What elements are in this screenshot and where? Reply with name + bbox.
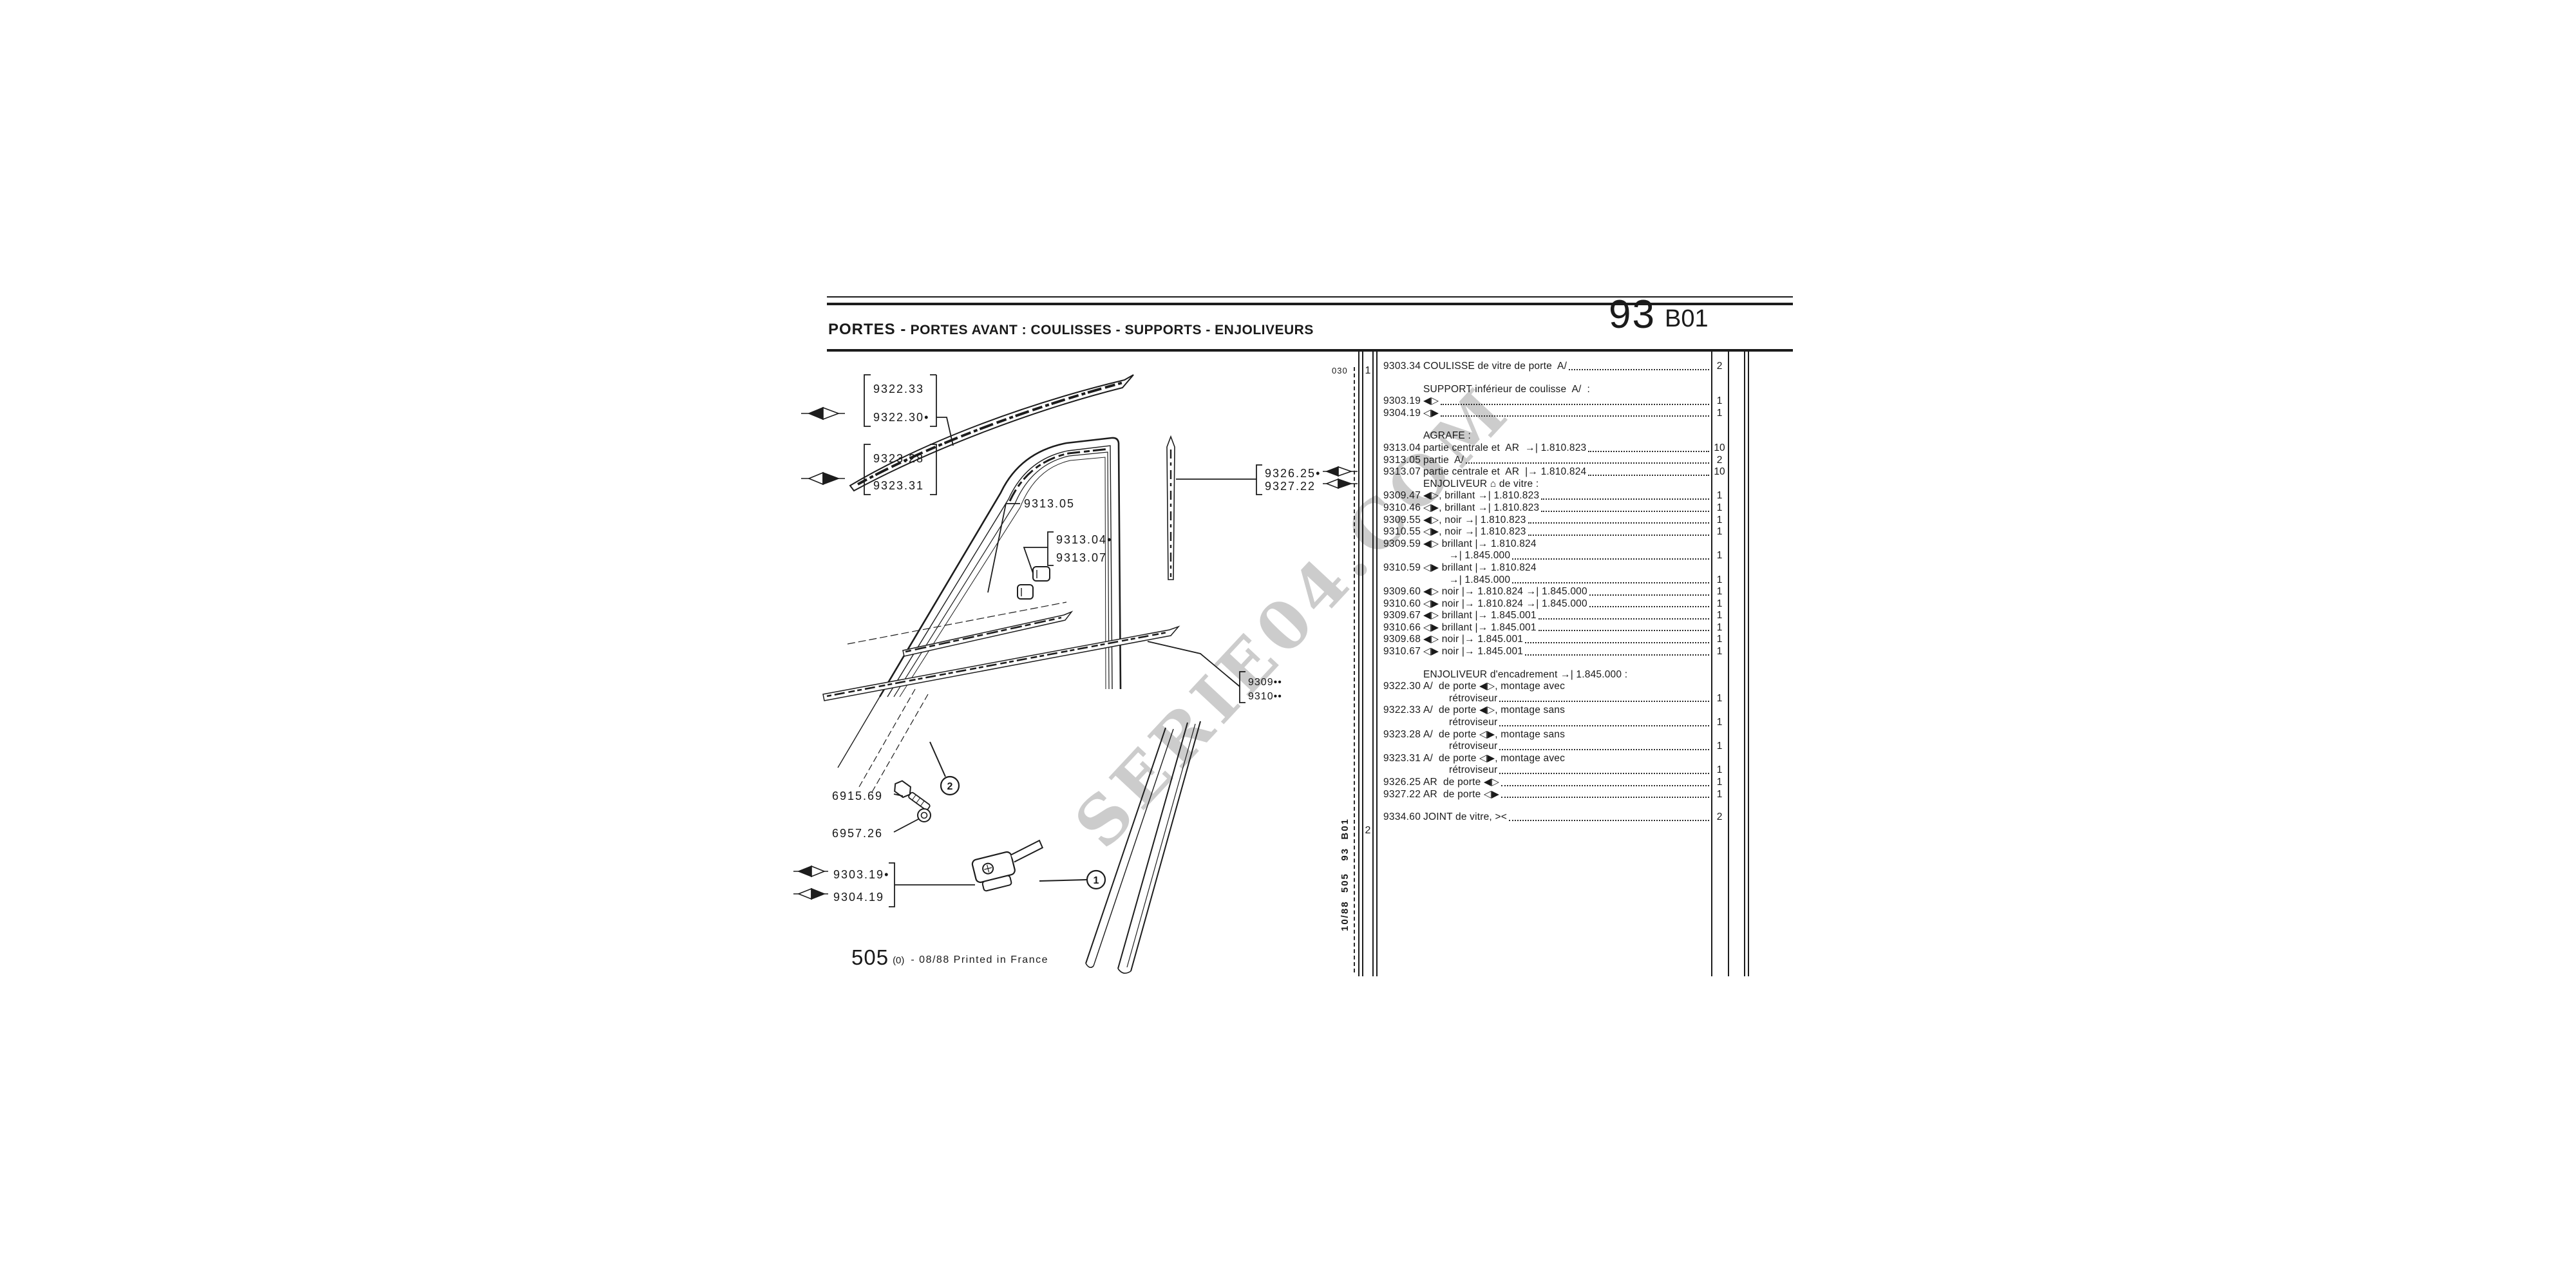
quarter-trim-strip	[1167, 437, 1175, 580]
table-row: 9304.19◁▶1	[1383, 408, 1728, 420]
part-ref: 9310.55	[1383, 526, 1423, 538]
part-description: ◀▷ brillant |→ 1.845.001	[1423, 610, 1537, 622]
page-number-block: 93 B01	[1609, 295, 1709, 335]
dotted-leader	[1528, 522, 1709, 524]
table-row: 9309.59◀▷ brillant |→ 1.810.824	[1383, 538, 1728, 551]
table-row: AGRAFE :	[1383, 430, 1728, 442]
dotted-leader	[1466, 462, 1709, 464]
door-window-frame	[880, 438, 1121, 697]
part-description: AGRAFE :	[1423, 430, 1471, 442]
part-ref: 9309.67	[1383, 610, 1423, 622]
part-description: ◁▶	[1423, 408, 1439, 420]
dotted-leader	[1539, 630, 1709, 631]
parts-table-rows: 9303.34COULISSE de vitre de porte A/2SUP…	[1383, 361, 1728, 824]
label-6957-26: 6957.26	[832, 827, 883, 840]
part-description: rétroviseur	[1423, 764, 1497, 777]
part-qty: 10	[1711, 442, 1728, 455]
table-row: 9309.60◀▷ noir |→ 1.810.824 →| 1.845.000…	[1383, 586, 1728, 598]
dotted-leader	[1501, 797, 1709, 798]
table-row: 9303.19◀▷1	[1383, 395, 1728, 408]
left-part-icon	[801, 408, 845, 419]
part-qty: 1	[1711, 764, 1728, 777]
part-qty: 1	[1711, 717, 1728, 729]
part-ref: 9309.59	[1383, 538, 1423, 551]
part-ref: 9309.68	[1383, 634, 1423, 646]
part-ref: 9310.60	[1383, 598, 1423, 611]
part-qty: 1	[1711, 789, 1728, 801]
part-description: ◀▷, brillant →| 1.810.823	[1423, 490, 1539, 502]
part-description: ◁▶ brillant |→ 1.845.001	[1423, 622, 1537, 634]
dotted-leader	[1441, 404, 1709, 405]
part-ref: 9313.04	[1383, 442, 1423, 455]
table-row: ENJOLIVEUR ⌂ de vitre :	[1383, 478, 1728, 491]
table-row: rétroviseur1	[1383, 717, 1728, 729]
part-qty: 2	[1711, 361, 1728, 373]
part-qty: 1	[1711, 598, 1728, 611]
label-9323-28: 9323.28	[873, 452, 924, 465]
label-9323-31: 9323.31	[873, 479, 924, 492]
part-description: SUPPORT inférieur de coulisse A/ :	[1423, 384, 1590, 396]
dotted-leader	[1525, 654, 1709, 656]
table-row: 9310.67◁▶ noir |→ 1.845.0011	[1383, 646, 1728, 658]
label-9313-07: 9313.07	[1056, 551, 1107, 564]
left-part-icon-quarter	[1323, 467, 1358, 476]
table-row-gap	[1383, 800, 1728, 811]
part-ref: 9310.67	[1383, 646, 1423, 658]
part-qty: 2	[1711, 455, 1728, 467]
label-9322-33: 9322.33	[873, 383, 924, 395]
glass-run-channel	[1086, 721, 1200, 973]
part-qty: 1	[1711, 586, 1728, 598]
part-ref: 9334.60	[1383, 811, 1423, 824]
table-row: 9322.33A/ de porte ◀▷, montage sans	[1383, 705, 1728, 717]
table-row: 9310.66◁▶ brillant |→ 1.845.0011	[1383, 622, 1728, 634]
right-part-icon	[801, 473, 845, 484]
part-description: ◀▷ brillant |→ 1.810.824	[1423, 538, 1537, 551]
table-row: 9310.60◁▶ noir |→ 1.810.824 →| 1.845.000…	[1383, 598, 1728, 611]
group-number-2: 2	[1361, 825, 1375, 837]
part-qty: 1	[1711, 622, 1728, 634]
table-row: 9303.34COULISSE de vitre de porte A/2	[1383, 361, 1728, 373]
part-description: ◀▷	[1423, 395, 1439, 408]
part-description: ◁▶, noir →| 1.810.823	[1423, 526, 1526, 538]
dotted-leader	[1441, 415, 1709, 417]
part-ref: 9304.19	[1383, 408, 1423, 420]
part-qty: 1	[1711, 408, 1728, 420]
label-9313-04: 9313.04•	[1056, 533, 1112, 546]
page-number: 93	[1609, 295, 1656, 335]
table-row: rétroviseur1	[1383, 764, 1728, 777]
table-row: rétroviseur1	[1383, 693, 1728, 705]
dotted-leader	[1541, 498, 1709, 500]
part-qty: 1	[1711, 741, 1728, 753]
table-row: 9334.60JOINT de vitre, ><2	[1383, 811, 1728, 824]
part-ref: 9322.30	[1383, 681, 1423, 693]
part-description: ENJOLIVEUR ⌂ de vitre :	[1423, 478, 1539, 491]
part-ref: 9310.59	[1383, 562, 1423, 574]
table-row: 9309.55◀▷, noir →| 1.810.8231	[1383, 515, 1728, 527]
label-9309: 9309••	[1248, 677, 1282, 688]
part-ref: 9310.66	[1383, 622, 1423, 634]
part-description: ◀▷ noir |→ 1.845.001	[1423, 634, 1523, 646]
label-9313-05: 9313.05	[1024, 497, 1075, 510]
dotted-leader	[1499, 701, 1709, 702]
part-description: rétroviseur	[1423, 717, 1497, 729]
bolt-part	[891, 779, 933, 813]
dotted-leader	[1512, 558, 1709, 560]
part-description: A/ de porte ◀▷, montage avec	[1423, 681, 1565, 693]
table-row: 9322.30A/ de porte ◀▷, montage avec	[1383, 681, 1728, 693]
table-row: 9313.04partie centrale et AR →| 1.810.82…	[1383, 442, 1728, 455]
dotted-leader	[1589, 594, 1709, 596]
table-row: →| 1.845.0001	[1383, 574, 1728, 587]
part-ref: 9326.25	[1383, 777, 1423, 789]
dotted-leader	[1541, 511, 1709, 512]
part-description: A/ de porte ◁▶, montage sans	[1423, 729, 1565, 741]
part-description: partie A/	[1423, 455, 1464, 467]
page-code: B01	[1665, 303, 1709, 335]
part-ref: 9309.47	[1383, 490, 1423, 502]
part-description: ◁▶, brillant →| 1.810.823	[1423, 502, 1539, 515]
table-row: 9310.59◁▶ brillant |→ 1.810.824	[1383, 562, 1728, 574]
right-part-icon-lower	[793, 889, 828, 899]
support-bracket	[971, 840, 1049, 893]
part-ref: 9327.22	[1383, 789, 1423, 801]
table-row: 9309.47◀▷, brillant →| 1.810.8231	[1383, 490, 1728, 502]
part-description: ◁▶ noir |→ 1.845.001	[1423, 646, 1523, 658]
part-ref: 9323.31	[1383, 753, 1423, 765]
part-qty: 1	[1711, 574, 1728, 587]
part-description: A/ de porte ◀▷, montage sans	[1423, 705, 1565, 717]
part-description: rétroviseur	[1423, 693, 1497, 705]
table-row: 9326.25AR de porte ◀▷1	[1383, 777, 1728, 789]
part-qty: 1	[1711, 515, 1728, 527]
part-qty: 1	[1711, 693, 1728, 705]
belt-moulding-strips	[823, 602, 1179, 792]
table-row: 9313.05partie A/2	[1383, 455, 1728, 467]
dotted-leader	[1499, 725, 1709, 726]
part-ref: 9313.07	[1383, 466, 1423, 478]
table-row: →| 1.845.0001	[1383, 550, 1728, 562]
dotted-leader	[1512, 582, 1709, 583]
part-qty: 2	[1711, 811, 1728, 824]
group-column-rule-b	[1376, 350, 1378, 976]
dotted-leader	[1588, 475, 1709, 476]
dotted-leader	[1569, 369, 1709, 370]
part-ref: 9313.05	[1383, 455, 1423, 467]
part-qty: 1	[1711, 550, 1728, 562]
part-qty: 1	[1711, 610, 1728, 622]
table-row: 9310.55◁▶, noir →| 1.810.8231	[1383, 526, 1728, 538]
part-qty: 10	[1711, 466, 1728, 478]
part-qty: 1	[1711, 502, 1728, 515]
table-row: 9309.68◀▷ noir |→ 1.845.0011	[1383, 634, 1728, 646]
dotted-leader	[1588, 451, 1709, 452]
part-description: AR de porte ◀▷	[1423, 777, 1499, 789]
part-ref: 9322.33	[1383, 705, 1423, 717]
table-row: ENJOLIVEUR d'encadrement →| 1.845.000 :	[1383, 669, 1728, 681]
part-qty: 1	[1711, 634, 1728, 646]
part-description: JOINT de vitre, ><	[1423, 811, 1507, 824]
dotted-leader	[1501, 785, 1709, 786]
left-part-icon-lower	[793, 866, 828, 876]
part-description: ◀▷ noir |→ 1.810.824 →| 1.845.000	[1423, 586, 1587, 598]
table-row: 9323.28A/ de porte ◁▶, montage sans	[1383, 729, 1728, 741]
dotted-leader	[1528, 535, 1709, 536]
table-row: 9327.22AR de porte ◁▶1	[1383, 789, 1728, 801]
dotted-leader	[1499, 773, 1709, 774]
page-edge-rule-b	[1748, 350, 1749, 976]
part-qty: 1	[1711, 646, 1728, 658]
label-9322-30: 9322.30•	[873, 411, 929, 424]
table-row: rétroviseur1	[1383, 741, 1728, 753]
part-ref: 9303.34	[1383, 361, 1423, 373]
dotted-leader	[1589, 606, 1709, 607]
label-9326-25: 9326.25•	[1265, 467, 1321, 480]
scanned-catalog-sheet: SERIE04.COM PORTES - PORTES AVANT : COUL…	[0, 0, 2576, 1288]
part-qty: 1	[1711, 777, 1728, 789]
table-row: 9310.46◁▶, brillant →| 1.810.8231	[1383, 502, 1728, 515]
dotted-leader	[1539, 618, 1709, 620]
table-row: SUPPORT inférieur de coulisse A/ :	[1383, 384, 1728, 396]
part-description: A/ de porte ◁▶, montage avec	[1423, 753, 1565, 765]
part-description: AR de porte ◁▶	[1423, 789, 1499, 801]
label-9303-19: 9303.19•	[833, 868, 889, 881]
callout-1-number: 1	[1094, 875, 1099, 886]
table-row: 9323.31A/ de porte ◁▶, montage avec	[1383, 753, 1728, 765]
label-6915-69: 6915.69	[832, 790, 883, 802]
part-ref: 9303.19	[1383, 395, 1423, 408]
clip-parts	[1018, 567, 1050, 599]
table-row: 9309.67◀▷ brillant |→ 1.845.0011	[1383, 610, 1728, 622]
label-9304-19: 9304.19	[833, 891, 884, 904]
part-description: ENJOLIVEUR d'encadrement →| 1.845.000 :	[1423, 669, 1627, 681]
nut-part	[918, 809, 931, 822]
callout-2	[930, 742, 959, 795]
callout-2-number: 2	[947, 781, 953, 792]
group-column-rule-a	[1372, 350, 1374, 976]
part-qty: 1	[1711, 526, 1728, 538]
part-ref: 9309.60	[1383, 586, 1423, 598]
table-row-gap	[1383, 658, 1728, 669]
part-qty: 1	[1711, 395, 1728, 408]
right-part-icon-quarter	[1323, 479, 1358, 488]
door-diagram: 9322.33 9322.30• 9323.28 9323.31 9313.05…	[783, 277, 1363, 992]
part-ref: 9310.46	[1383, 502, 1423, 515]
dotted-leader	[1499, 749, 1709, 750]
table-row-gap	[1383, 373, 1728, 384]
label-9310: 9310••	[1248, 691, 1282, 702]
part-description: partie centrale et AR →| 1.810.823	[1423, 442, 1586, 455]
table-row: 9313.07partie centrale et AR |→ 1.810.82…	[1383, 466, 1728, 478]
part-description: ◁▶ brillant |→ 1.810.824	[1423, 562, 1537, 574]
part-ref: 9309.55	[1383, 515, 1423, 527]
page-edge-rule-a	[1744, 350, 1745, 976]
table-row-gap	[1383, 419, 1728, 430]
qty-column-right-rule	[1728, 350, 1729, 976]
group-number-1: 1	[1361, 365, 1375, 377]
catalog-page: SERIE04.COM PORTES - PORTES AVANT : COUL…	[783, 277, 1793, 998]
part-ref: 9323.28	[1383, 729, 1423, 741]
part-description: partie centrale et AR |→ 1.810.824	[1423, 466, 1586, 478]
part-description: ◀▷, noir →| 1.810.823	[1423, 515, 1526, 527]
part-qty: 1	[1711, 490, 1728, 502]
part-description: rétroviseur	[1423, 741, 1497, 753]
dotted-leader	[1525, 642, 1709, 643]
label-9327-22: 9327.22	[1265, 480, 1316, 493]
dotted-leader	[1509, 820, 1709, 821]
part-description: COULISSE de vitre de porte A/	[1423, 361, 1567, 373]
part-description: ◁▶ noir |→ 1.810.824 →| 1.845.000	[1423, 598, 1587, 611]
part-description: →| 1.845.000	[1423, 574, 1510, 587]
part-description: →| 1.845.000	[1423, 550, 1510, 562]
